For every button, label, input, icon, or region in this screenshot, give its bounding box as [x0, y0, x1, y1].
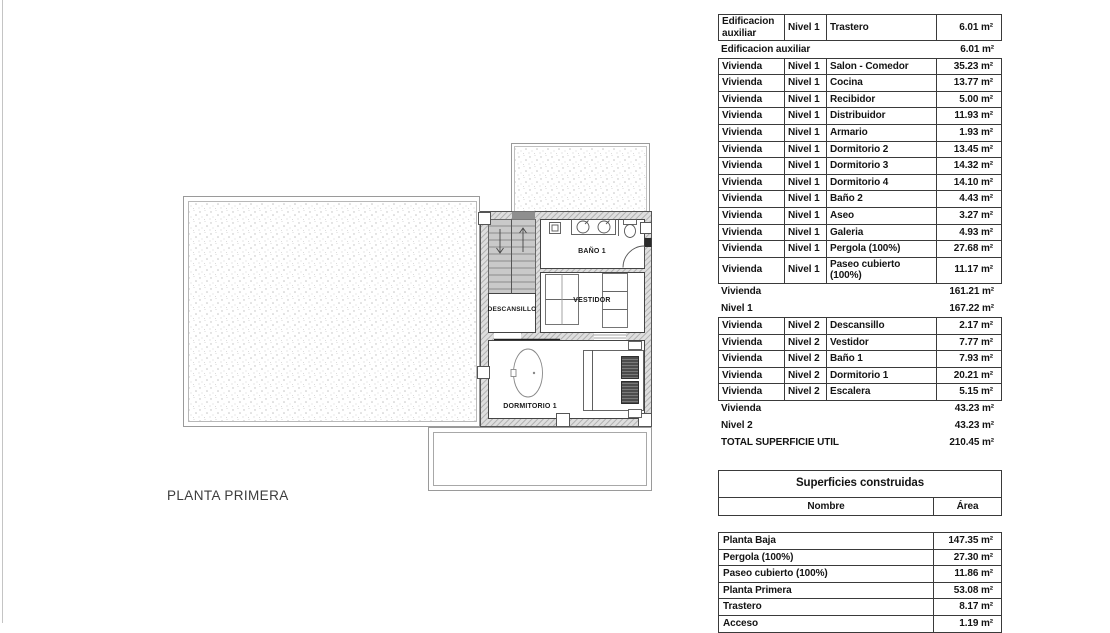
built-surfaces-table: Superficies construidas Nombre Área Plan…	[718, 470, 1002, 633]
table-cell: Vivienda	[719, 263, 784, 277]
table-cell: Vivienda	[719, 209, 784, 223]
table-cell: Vivienda	[719, 192, 784, 206]
table-row: Planta Primera53.08 m²	[719, 582, 1001, 599]
table-cell: 7.93 m²	[936, 351, 1001, 367]
room-label-vestidor: VESTIDOR	[540, 297, 644, 304]
table-cell: Nivel 2	[784, 368, 826, 384]
room-label-descansillo: DESCANSILLO	[486, 306, 538, 313]
floor-plan-drawing	[70, 130, 670, 505]
table-cell: Vestidor	[826, 335, 936, 351]
summary-row: Vivienda43.23 m²	[718, 401, 1002, 418]
table-cell: 1.93 m²	[936, 125, 1001, 141]
table-cell: Escalera	[826, 384, 936, 400]
table-cell: Vivienda	[719, 242, 784, 256]
table-cell: Nivel 2	[784, 318, 826, 334]
surface-util-table: Edificacion auxiliarNivel 1Trastero6.01 …	[718, 14, 1002, 451]
table-row: Pergola (100%)27.30 m²	[719, 549, 1001, 566]
pillow	[622, 382, 639, 404]
table-cell: 8.17 m²	[933, 599, 1001, 615]
column-header-nombre: Nombre	[719, 498, 933, 515]
table-cell: Vivienda	[719, 319, 784, 333]
table-cell: Distribuidor	[826, 108, 936, 124]
table-cell: Nivel 1	[784, 142, 826, 158]
table-cell: Nivel 2	[784, 335, 826, 351]
table-cell: Nivel 1	[784, 191, 826, 207]
table-row: ViviendaNivel 1Armario1.93 m²	[719, 124, 1001, 141]
table-row: ViviendaNivel 1Galeria4.93 m²	[719, 224, 1001, 241]
table-row: Planta Baja147.35 m²	[719, 533, 1001, 549]
table-cell: Descansillo	[826, 318, 936, 334]
table-cell: 2.17 m²	[936, 318, 1001, 334]
table-row: Trastero8.17 m²	[719, 598, 1001, 615]
built-surfaces-column-headers: Nombre Área	[719, 497, 1001, 515]
table-cell: 1.19 m²	[933, 616, 1001, 632]
terrace	[184, 197, 480, 427]
roof-area	[512, 144, 650, 212]
table-cell: Dormitorio 3	[826, 158, 936, 174]
table-cell: 14.32 m²	[936, 158, 1001, 174]
table-cell: Salon - Comedor	[826, 59, 936, 75]
table-row: ViviendaNivel 1Dormitorio 314.32 m²	[719, 157, 1001, 174]
pillow	[622, 357, 639, 379]
table-row: ViviendaNivel 1Dormitorio 414.10 m²	[719, 174, 1001, 191]
summary-value: 43.23 m²	[955, 403, 994, 415]
table-row: Paseo cubierto (100%)11.86 m²	[719, 565, 1001, 582]
table-cell: 5.15 m²	[936, 384, 1001, 400]
table-cell: Vivienda	[719, 369, 784, 383]
built-surfaces-rows: Planta Baja147.35 m²Pergola (100%)27.30 …	[718, 532, 1002, 633]
table-cell: Recibidor	[826, 92, 936, 108]
table-grid: Edificacion auxiliarNivel 1Trastero6.01 …	[718, 14, 1002, 41]
table-cell: Pergola (100%)	[719, 550, 933, 566]
table-cell: Armario	[826, 125, 936, 141]
summary-label: Edificacion auxiliar	[721, 44, 810, 56]
table-row: ViviendaNivel 2Descansillo2.17 m²	[719, 318, 1001, 334]
table-cell: Vivienda	[719, 336, 784, 350]
summary-row: Nivel 243.23 m²	[718, 417, 1002, 434]
table-cell: Vivienda	[719, 159, 784, 173]
table-cell: 11.93 m²	[936, 108, 1001, 124]
table-cell: Vivienda	[719, 226, 784, 240]
table-row: ViviendaNivel 1Salon - Comedor35.23 m²	[719, 59, 1001, 75]
table-row: ViviendaNivel 1Baño 24.43 m²	[719, 190, 1001, 207]
table-cell: Nivel 1	[784, 175, 826, 191]
table-cell: Vivienda	[719, 352, 784, 366]
table-row: ViviendaNivel 1Recibidor5.00 m²	[719, 91, 1001, 108]
summary-label: Nivel 2	[721, 420, 753, 432]
table-cell: 7.77 m²	[936, 335, 1001, 351]
floor-plan-area: DESCANSILLO BAÑO 1 VESTIDOR DORMITORIO 1…	[0, 0, 700, 623]
table-row: ViviendaNivel 2Vestidor7.77 m²	[719, 334, 1001, 351]
table-cell: 3.27 m²	[936, 208, 1001, 224]
table-cell: Vivienda	[719, 60, 784, 74]
table-cell: Acceso	[719, 616, 933, 632]
table-cell: 20.21 m²	[936, 368, 1001, 384]
room-label-bano1: BAÑO 1	[540, 248, 644, 255]
table-cell: 6.01 m²	[936, 15, 1001, 40]
table-cell: 35.23 m²	[936, 59, 1001, 75]
table-cell: 11.17 m²	[936, 258, 1001, 283]
table-cell: 5.00 m²	[936, 92, 1001, 108]
table-cell: Vivienda	[719, 126, 784, 140]
table-row: ViviendaNivel 1Aseo3.27 m²	[719, 207, 1001, 224]
table-row: ViviendaNivel 2Baño 17.93 m²	[719, 350, 1001, 367]
table-cell: Nivel 1	[784, 75, 826, 91]
table-cell: 53.08 m²	[933, 583, 1001, 599]
table-cell: Trastero	[719, 599, 933, 615]
table-cell: 14.10 m²	[936, 175, 1001, 191]
summary-label: Nivel 1	[721, 303, 753, 315]
table-cell: Dormitorio 1	[826, 368, 936, 384]
table-cell: 147.35 m²	[933, 533, 1001, 549]
table-cell: Vivienda	[719, 385, 784, 399]
table-cell: 27.68 m²	[936, 241, 1001, 257]
table-cell: Nivel 2	[784, 384, 826, 400]
room-label-dormitorio1: DORMITORIO 1	[478, 403, 582, 410]
summary-value: 6.01 m²	[960, 44, 994, 56]
table-cell: Vivienda	[719, 76, 784, 90]
table-cell: Edificacion auxiliar	[719, 15, 784, 40]
table-cell: Cocina	[826, 75, 936, 91]
table-cell: Vivienda	[719, 176, 784, 190]
table-grid: ViviendaNivel 2Descansillo2.17 m²Viviend…	[718, 317, 1002, 401]
summary-label: Vivienda	[721, 403, 761, 415]
table-cell: Vivienda	[719, 93, 784, 107]
table-cell: Nivel 1	[784, 125, 826, 141]
lower-terrace	[429, 428, 652, 491]
table-cell: Galeria	[826, 225, 936, 241]
table-cell: Nivel 1	[784, 158, 826, 174]
table-cell: Nivel 1	[784, 208, 826, 224]
table-cell: Vivienda	[719, 143, 784, 157]
table-cell: Aseo	[826, 208, 936, 224]
table-cell: Trastero	[826, 15, 936, 40]
summary-value: 43.23 m²	[955, 420, 994, 432]
built-surfaces-title: Superficies construidas	[719, 471, 1001, 497]
bed	[584, 342, 644, 418]
summary-label: Vivienda	[721, 286, 761, 298]
nightstand	[629, 410, 642, 418]
table-cell: 11.86 m²	[933, 566, 1001, 582]
built-surfaces-header: Superficies construidas Nombre Área	[718, 470, 1002, 516]
table-cell: 4.43 m²	[936, 191, 1001, 207]
table-cell: Planta Primera	[719, 583, 933, 599]
summary-row: Nivel 1167.22 m²	[718, 300, 1002, 317]
table-cell: Nivel 1	[784, 92, 826, 108]
summary-value: 210.45 m²	[949, 437, 994, 449]
table-cell: Paseo cubierto (100%)	[719, 566, 933, 582]
table-cell: 27.30 m²	[933, 550, 1001, 566]
summary-value: 161.21 m²	[949, 286, 994, 298]
table-cell: Planta Baja	[719, 533, 933, 549]
table-cell: Dormitorio 2	[826, 142, 936, 158]
table-cell: Nivel 2	[784, 351, 826, 367]
table-cell: Nivel 1	[784, 108, 826, 124]
table-cell: Baño 2	[826, 191, 936, 207]
table-cell: 13.45 m²	[936, 142, 1001, 158]
table-row: ViviendaNivel 2Escalera5.15 m²	[719, 383, 1001, 400]
summary-row: Vivienda161.21 m²	[718, 284, 1002, 301]
table-grid: ViviendaNivel 1Salon - Comedor35.23 m²Vi…	[718, 58, 1002, 284]
table-row: ViviendaNivel 1Cocina13.77 m²	[719, 74, 1001, 91]
table-cell: Dormitorio 4	[826, 175, 936, 191]
descansillo-room	[489, 294, 536, 333]
table-row: ViviendaNivel 1Dormitorio 213.45 m²	[719, 141, 1001, 158]
summary-row: Edificacion auxiliar6.01 m²	[718, 41, 1002, 58]
plan-title: PLANTA PRIMERA	[167, 488, 289, 503]
table-cell: Vivienda	[719, 109, 784, 123]
table-cell: 4.93 m²	[936, 225, 1001, 241]
table-cell: Nivel 1	[784, 241, 826, 257]
summary-label: TOTAL SUPERFICIE UTIL	[721, 437, 839, 449]
table-cell: Paseo cubierto (100%)	[826, 258, 936, 283]
table-row: ViviendaNivel 1Pergola (100%)27.68 m²	[719, 240, 1001, 257]
table-cell: Pergola (100%)	[826, 241, 936, 257]
table-cell: Nivel 1	[784, 15, 826, 40]
nightstand	[629, 342, 642, 350]
bano-room	[541, 220, 645, 269]
table-row: Acceso1.19 m²	[719, 615, 1001, 632]
column-header-area: Área	[933, 498, 1001, 515]
table-row: ViviendaNivel 1Paseo cubierto (100%)11.1…	[719, 257, 1001, 283]
table-cell: 13.77 m²	[936, 75, 1001, 91]
table-cell: Baño 1	[826, 351, 936, 367]
table-row: Edificacion auxiliarNivel 1Trastero6.01 …	[719, 15, 1001, 40]
summary-value: 167.22 m²	[949, 303, 994, 315]
table-row: ViviendaNivel 2Dormitorio 120.21 m²	[719, 367, 1001, 384]
table-cell: Nivel 1	[784, 258, 826, 283]
summary-row: TOTAL SUPERFICIE UTIL210.45 m²	[718, 434, 1002, 451]
table-cell: Nivel 1	[784, 59, 826, 75]
table-cell: Nivel 1	[784, 225, 826, 241]
table-row: ViviendaNivel 1Distribuidor11.93 m²	[719, 107, 1001, 124]
